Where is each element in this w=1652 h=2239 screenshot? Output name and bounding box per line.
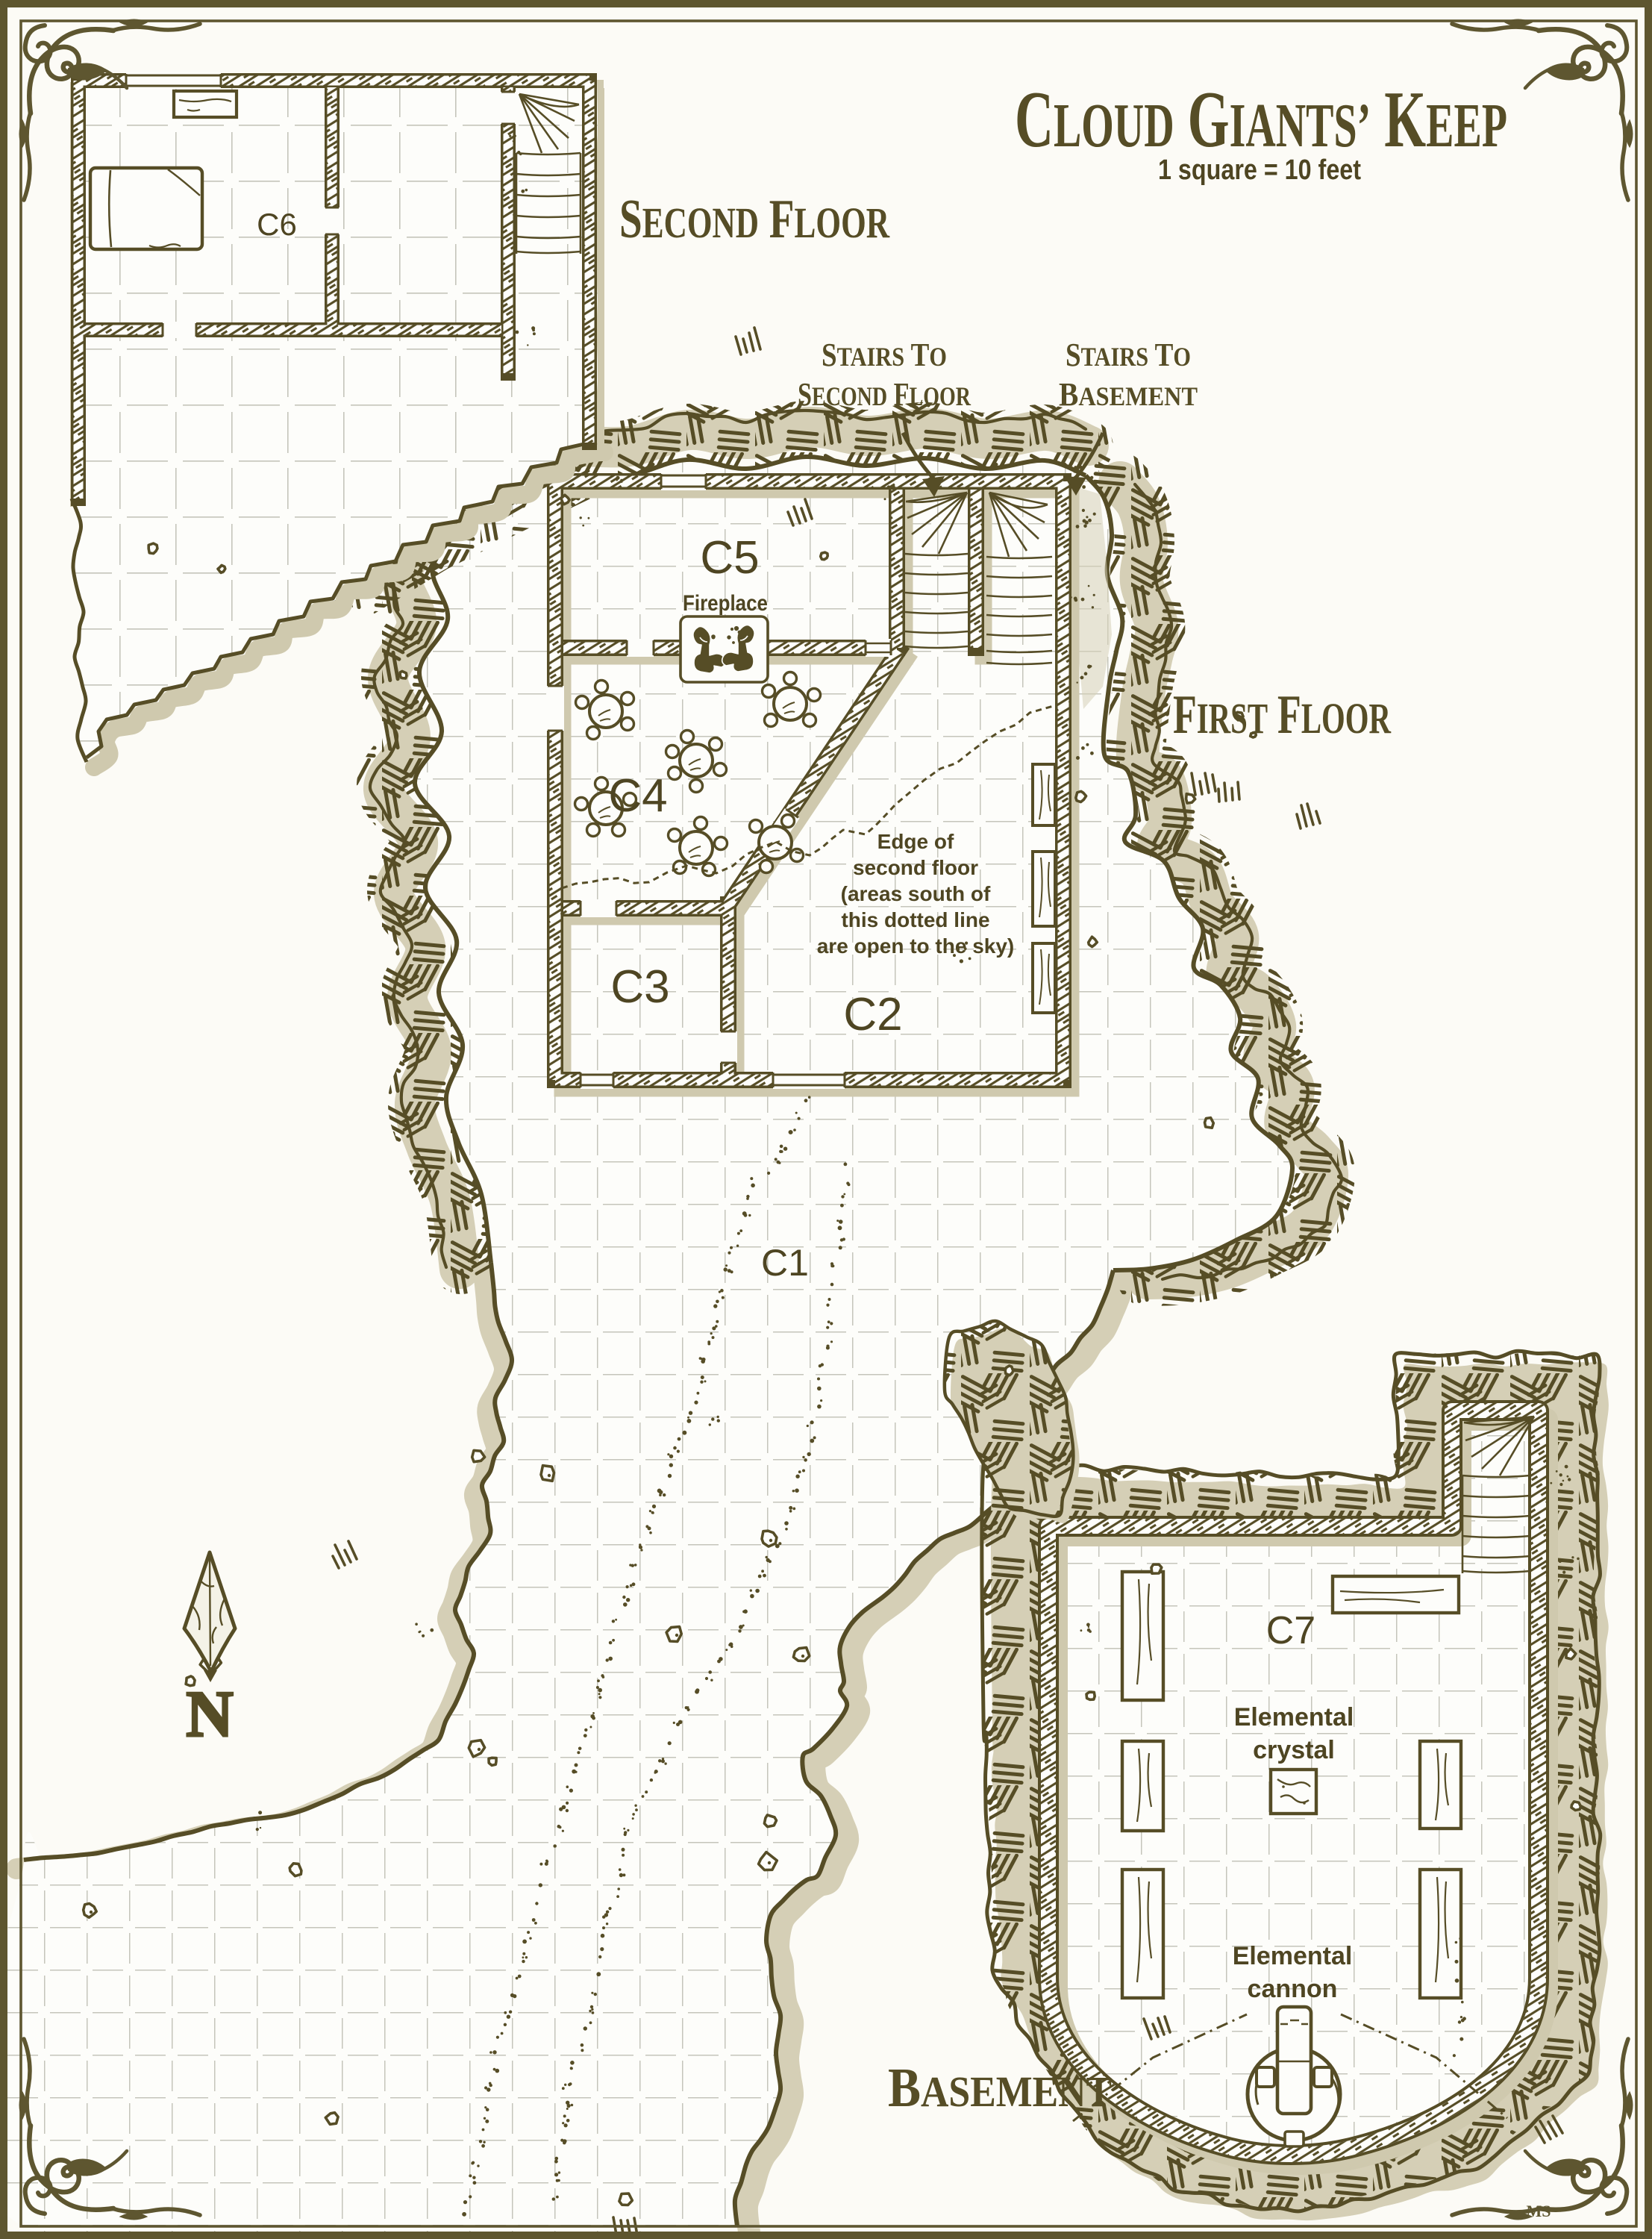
- svg-text:Elemental: Elemental: [1234, 1703, 1354, 1731]
- svg-text:second floor: second floor: [853, 856, 978, 879]
- svg-text:crystal: crystal: [1253, 1736, 1335, 1764]
- svg-text:MS: MS: [1527, 2202, 1551, 2220]
- svg-text:N: N: [186, 1679, 234, 1751]
- svg-text:(areas south of: (areas south of: [841, 882, 991, 905]
- svg-text:Edge of: Edge of: [877, 830, 954, 853]
- svg-text:FIRST FLOOR: FIRST FLOOR: [1173, 684, 1392, 746]
- svg-text:BASEMENT: BASEMENT: [888, 2058, 1112, 2119]
- svg-text:STAIRS TO: STAIRS TO: [1066, 337, 1191, 373]
- svg-text:are open to the sky): are open to the sky): [817, 934, 1015, 958]
- svg-text:C2: C2: [843, 989, 902, 1040]
- svg-text:C5: C5: [700, 532, 759, 584]
- svg-text:C4: C4: [608, 770, 667, 822]
- svg-text:SECOND FLOOR: SECOND FLOOR: [619, 189, 890, 250]
- svg-text:Fireplace: Fireplace: [683, 591, 768, 616]
- svg-text:C7: C7: [1266, 1609, 1315, 1652]
- svg-text:cannon: cannon: [1248, 1975, 1338, 2003]
- svg-text:C3: C3: [610, 961, 669, 1013]
- svg-text:Elemental: Elemental: [1233, 1942, 1353, 1970]
- svg-text:C1: C1: [761, 1242, 809, 1284]
- svg-text:STAIRS TO: STAIRS TO: [822, 337, 947, 373]
- svg-text:C6: C6: [257, 207, 297, 242]
- svg-text:BASEMENT: BASEMENT: [1059, 376, 1198, 413]
- svg-text:SECOND FLOOR: SECOND FLOOR: [798, 376, 972, 413]
- svg-text:1 square = 10 feet: 1 square = 10 feet: [1158, 154, 1361, 186]
- svg-text:this dotted line: this dotted line: [841, 908, 989, 931]
